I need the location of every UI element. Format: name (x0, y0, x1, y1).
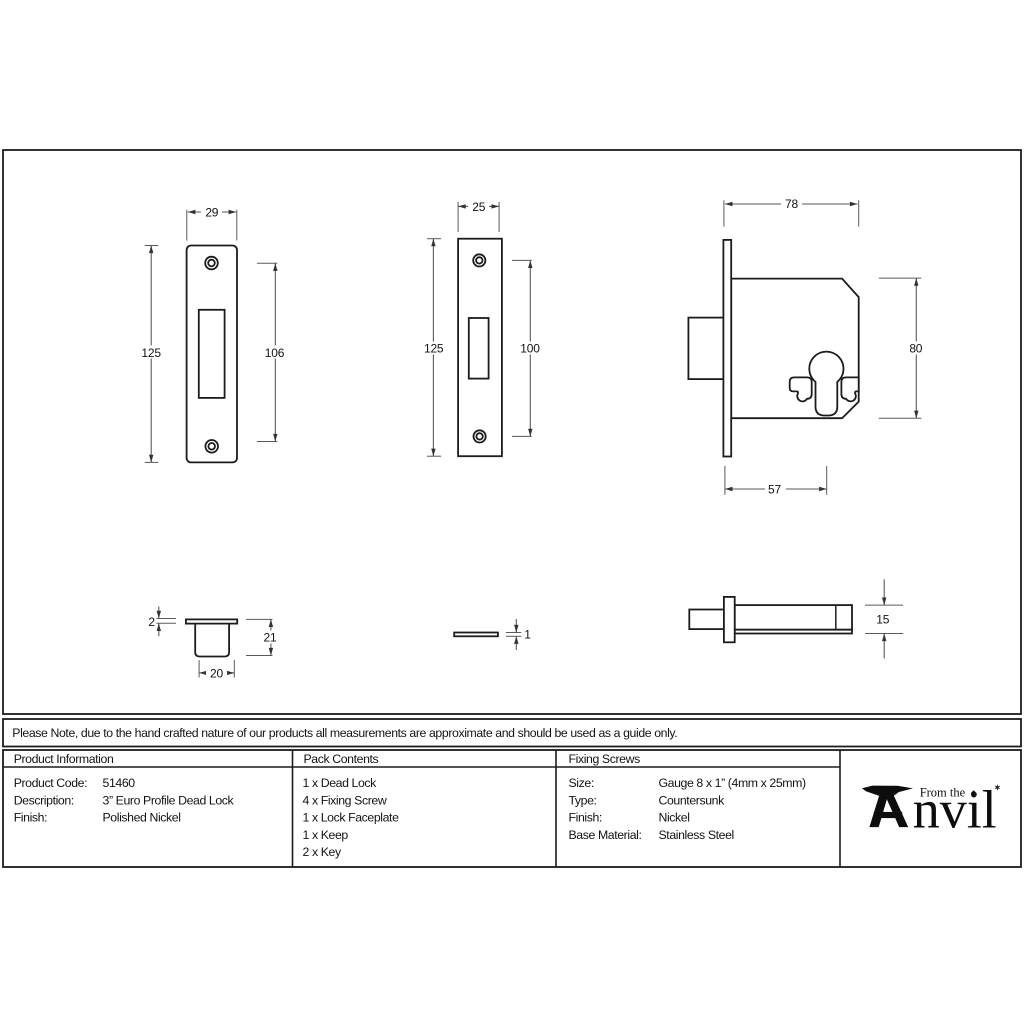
svg-text:125: 125 (141, 346, 161, 360)
svg-text:Stainless Steel: Stainless Steel (659, 828, 734, 842)
svg-text:2 x Key: 2 x Key (303, 845, 342, 859)
svg-text:1 x Keep: 1 x Keep (303, 828, 349, 842)
svg-text:From the: From the (920, 786, 966, 800)
svg-text:Fixing Screws: Fixing Screws (569, 752, 641, 766)
svg-text:2: 2 (148, 615, 155, 629)
svg-text:78: 78 (785, 197, 798, 211)
svg-text:Polished Nickel: Polished Nickel (103, 811, 181, 825)
svg-text:80: 80 (909, 342, 922, 356)
svg-text:100: 100 (520, 341, 540, 355)
svg-text:Description:: Description: (14, 793, 74, 807)
svg-text:106: 106 (265, 346, 285, 360)
svg-text:51460: 51460 (103, 776, 136, 790)
svg-text:125: 125 (424, 341, 444, 355)
svg-text:15: 15 (876, 613, 889, 627)
svg-text:1 x Dead Lock: 1 x Dead Lock (303, 776, 378, 790)
svg-text:Base Material:: Base Material: (569, 828, 642, 842)
svg-text:1 x Lock Faceplate: 1 x Lock Faceplate (303, 811, 400, 825)
svg-text:Nickel: Nickel (659, 811, 690, 825)
svg-text:21: 21 (264, 630, 277, 644)
svg-text:25: 25 (472, 200, 485, 214)
svg-text:Gauge 8 x 1” (4mm x 25mm): Gauge 8 x 1” (4mm x 25mm) (659, 776, 806, 790)
svg-text:Product Code:: Product Code: (14, 776, 87, 790)
svg-text:Please Note, due to the hand c: Please Note, due to the hand crafted nat… (12, 726, 677, 740)
svg-text:Finish:: Finish: (569, 811, 602, 825)
svg-text:20: 20 (210, 666, 223, 680)
svg-text:57: 57 (768, 482, 781, 496)
svg-text:Pack Contents: Pack Contents (304, 752, 379, 766)
svg-text:3” Euro Profile Dead Lock: 3” Euro Profile Dead Lock (103, 793, 235, 807)
svg-text:Size:: Size: (569, 776, 594, 790)
svg-text:Type:: Type: (569, 793, 597, 807)
svg-text:29: 29 (205, 205, 218, 219)
svg-text:Finish:: Finish: (14, 811, 47, 825)
svg-text:Countersunk: Countersunk (659, 793, 726, 807)
svg-text:1: 1 (524, 628, 531, 642)
svg-text:4 x Fixing Screw: 4 x Fixing Screw (303, 793, 387, 807)
svg-text:Product Information: Product Information (14, 752, 114, 766)
